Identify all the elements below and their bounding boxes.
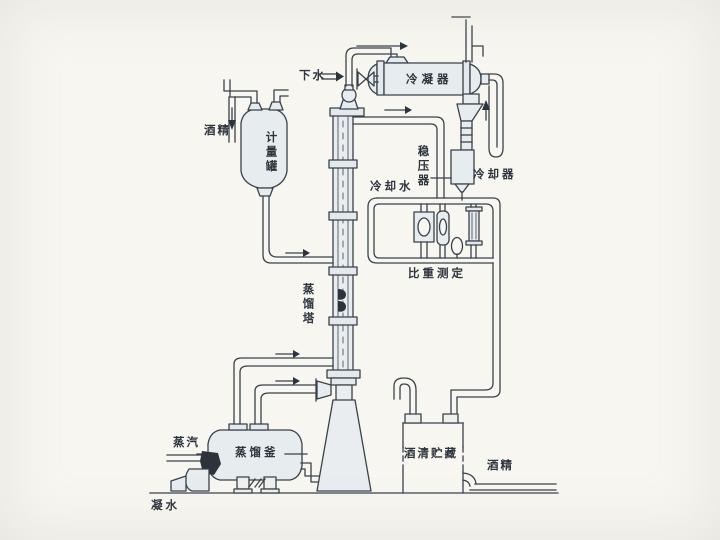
flow-arrow-right xyxy=(276,377,300,385)
label-metering-tank: 计量罐 xyxy=(265,131,277,175)
pipe-kettle-to-column-lower xyxy=(255,379,331,424)
label-alcohol-out: 酒精 xyxy=(487,459,514,472)
condenser-vent-pipe xyxy=(452,17,483,62)
storage-tank xyxy=(394,378,556,493)
label-condenser: 冷凝器 xyxy=(406,73,453,86)
label-drain-water: 下水 xyxy=(299,69,326,82)
flow-arrow-right xyxy=(276,350,300,358)
diagram-canvas: 下水 冷凝器 稳压器 冷却水 冷却器 比重测定 酒精 计量罐 蒸馏塔 蒸馏釜 蒸… xyxy=(0,0,720,540)
label-alcohol-feed: 酒精 xyxy=(204,124,231,137)
flow-arrow-right xyxy=(357,42,408,50)
label-stabilizer: 稳压器 xyxy=(417,145,429,189)
steam-inlet xyxy=(167,451,221,491)
flow-arrow-right xyxy=(286,249,310,257)
label-distillation-kettle: 蒸馏釜 xyxy=(235,446,279,459)
column-pedestal xyxy=(317,385,371,491)
sight-glass-assembly xyxy=(414,204,482,258)
label-gravity-measurement: 比重测定 xyxy=(408,267,466,280)
label-condensate: 凝水 xyxy=(151,499,180,512)
label-steam: 蒸汽 xyxy=(173,436,200,449)
condenser-vessel xyxy=(357,17,503,157)
kettle-drain-pipe xyxy=(301,463,320,482)
steam-trap xyxy=(185,469,209,491)
label-cooler: 冷却器 xyxy=(473,168,517,181)
diagram-linework xyxy=(0,0,720,540)
float-bulb xyxy=(452,238,463,255)
flow-arrow-right xyxy=(385,106,412,114)
sight-glass-cylinder xyxy=(469,211,479,241)
label-distillation-column: 蒸馏塔 xyxy=(302,283,314,327)
condenser-outlet-loop xyxy=(489,74,503,157)
label-cooling-water: 冷却水 xyxy=(370,180,414,193)
tank-hook-vent xyxy=(394,378,416,414)
tank-vent-right xyxy=(274,90,288,102)
pressure-stabilizer-fitting xyxy=(457,94,483,150)
distillation-column xyxy=(327,85,364,385)
label-alcohol-storage: 酒清贮藏 xyxy=(404,447,458,460)
alcohol-outlet-pipe xyxy=(463,473,556,490)
